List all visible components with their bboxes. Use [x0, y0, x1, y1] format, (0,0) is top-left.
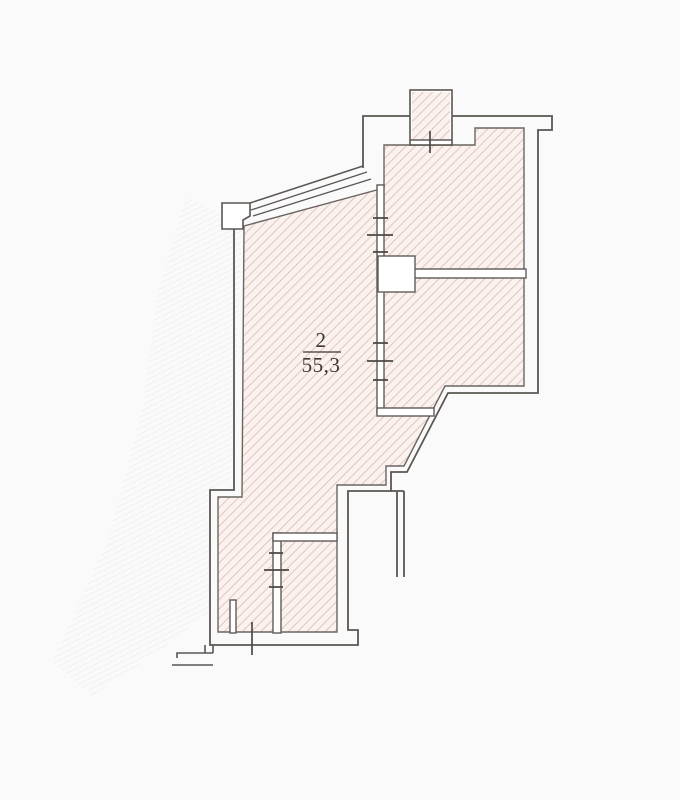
- wall-under-step: [377, 408, 434, 416]
- wall-smallroom-left: [273, 533, 281, 633]
- vent-shaft: [410, 90, 452, 145]
- room-label-number: 2: [316, 328, 327, 352]
- vent-shaft-hatch: [412, 92, 450, 139]
- wall-stub-bottom: [230, 600, 236, 633]
- wall-smallroom-top: [273, 533, 337, 541]
- floorplan-canvas: 2 55,3: [0, 0, 680, 800]
- wall-junction-box: [378, 256, 415, 292]
- room-label-area: 55,3: [302, 353, 341, 377]
- wall-bigroom-right: [377, 185, 384, 413]
- floorplan-svg: 2 55,3: [0, 0, 680, 800]
